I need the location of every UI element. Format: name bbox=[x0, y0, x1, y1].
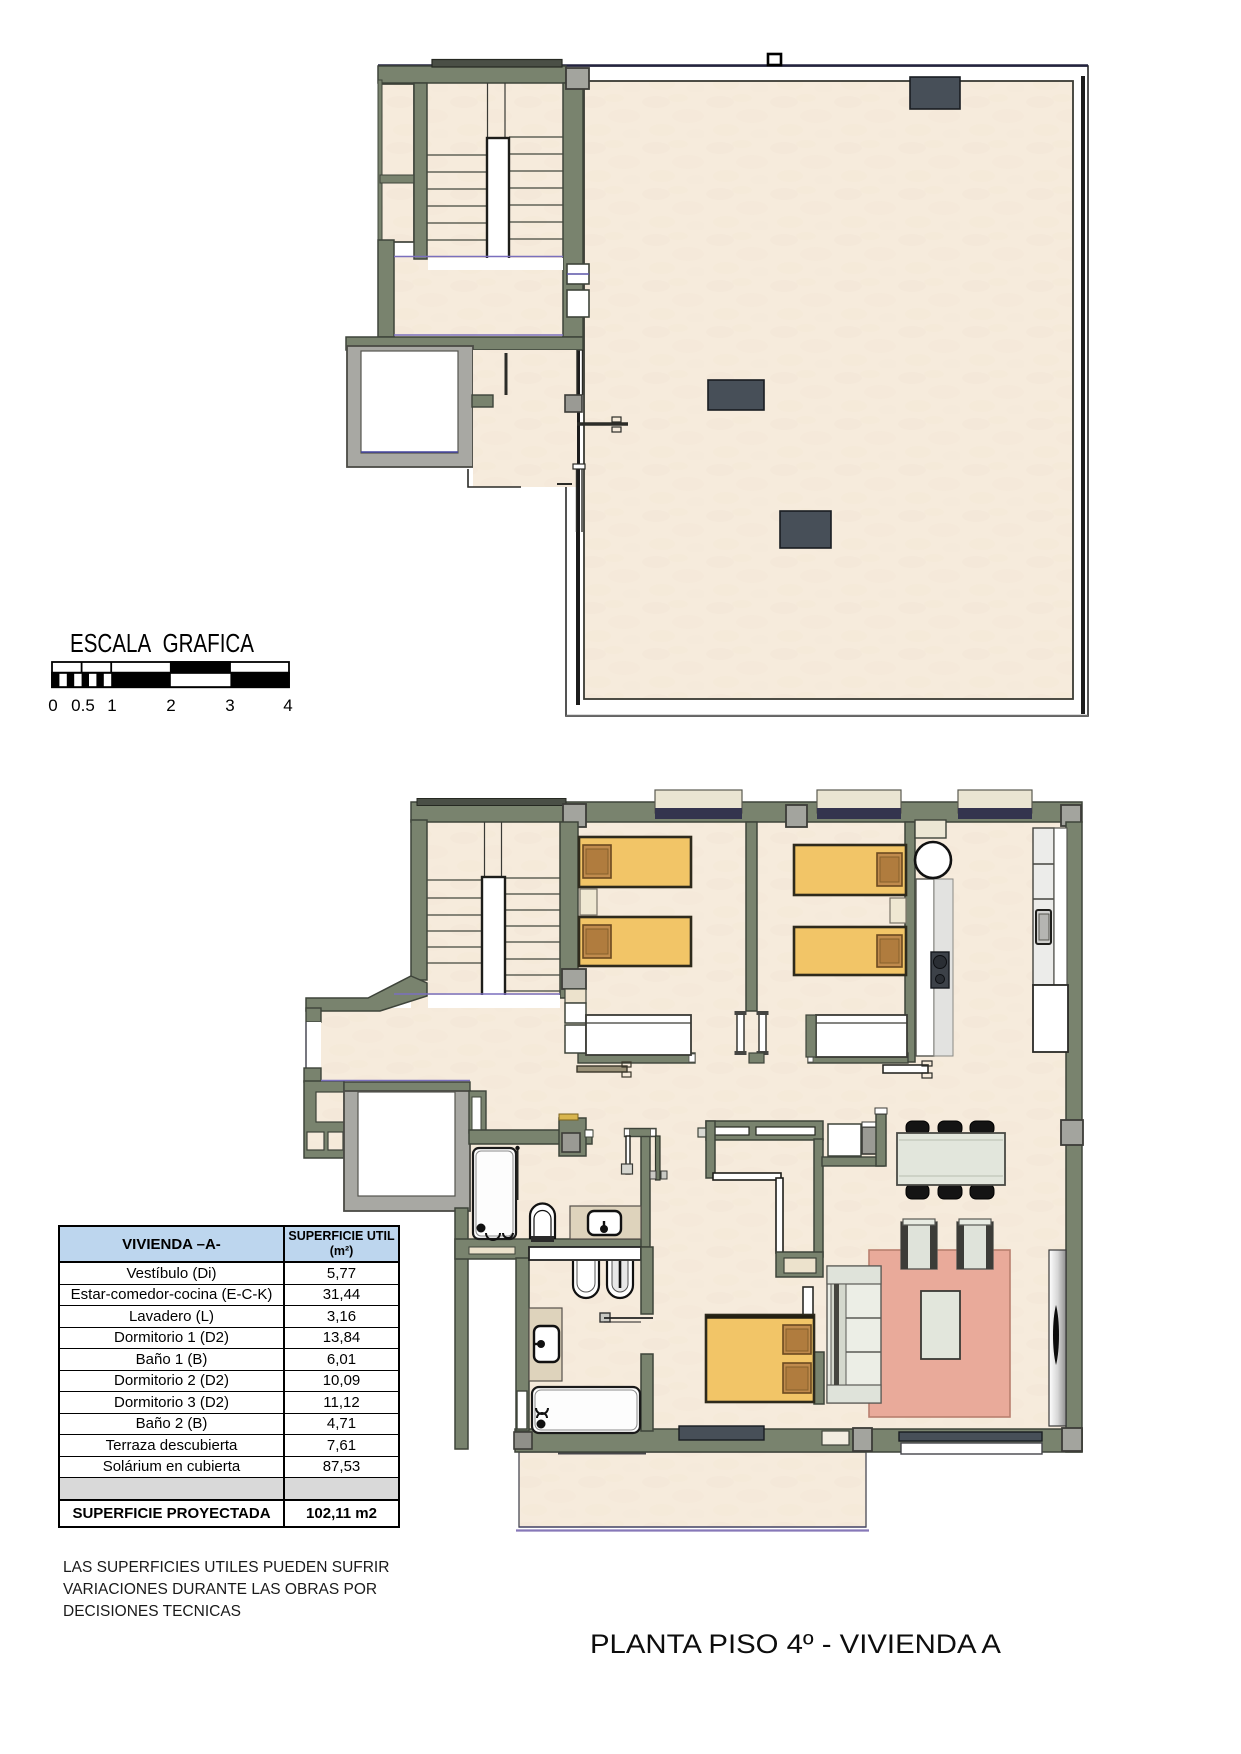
svg-text:0.5: 0.5 bbox=[71, 696, 95, 715]
svg-text:0: 0 bbox=[48, 696, 57, 715]
svg-text:4: 4 bbox=[283, 696, 292, 715]
svg-text:1: 1 bbox=[107, 696, 116, 715]
svg-text:3: 3 bbox=[225, 696, 234, 715]
svg-text:ESCALA GRAFICA: ESCALA GRAFICA bbox=[70, 628, 255, 658]
svg-text:2: 2 bbox=[166, 696, 175, 715]
svg-text:PLANTA PISO 4º - VIVIENDA A: PLANTA PISO 4º - VIVIENDA A bbox=[590, 1629, 1001, 1659]
